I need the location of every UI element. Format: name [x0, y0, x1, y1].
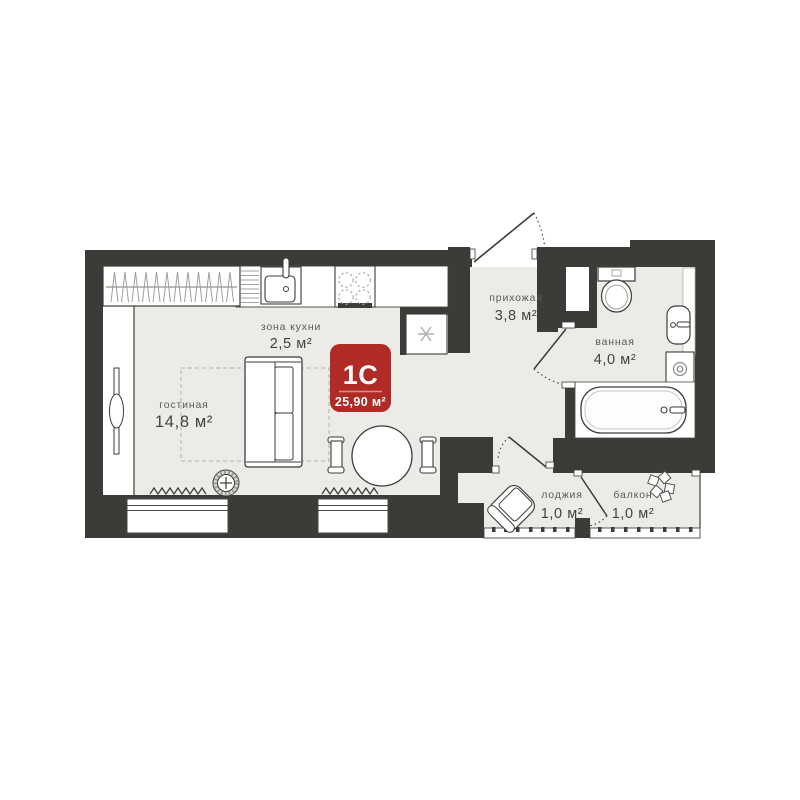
wall-loggia-left: [440, 437, 458, 538]
wall-hallway-right: [537, 247, 558, 332]
label-kitchen-zone: зона кухни: [261, 321, 321, 333]
sofa-icon: [245, 357, 302, 467]
badge-total-area: 25,90 м²: [335, 395, 386, 409]
wardrobe: [103, 266, 240, 306]
balcony-glazing: [590, 528, 700, 538]
wall-kitchen-right: [448, 247, 470, 353]
table-top: [352, 426, 412, 486]
area-kitchen-zone: 2,5 м²: [270, 336, 312, 352]
label-hallway: прихожая: [489, 292, 543, 304]
glazing: [484, 527, 700, 538]
wall-left: [85, 250, 103, 538]
window-right: [318, 499, 388, 533]
area-living-room: 14,8 м²: [155, 413, 213, 431]
toilet-icon: [598, 267, 635, 312]
wall-right: [695, 240, 715, 462]
apartment-badge: 1С 25,90 м²: [330, 344, 391, 412]
door-leaf: [474, 213, 534, 262]
bathtub-icon: [575, 382, 695, 438]
floor-plan-svg: зона кухни 2,5 м² гостиная 14,8 м² прихо…: [0, 0, 800, 800]
bathroom-sink-icon: [667, 306, 690, 344]
entrance-door: [470, 213, 546, 262]
wall-loggia-corner: [458, 503, 484, 538]
stove-burners-icon: [335, 266, 375, 308]
window-left: [127, 499, 228, 533]
label-loggia: лоджия: [541, 489, 583, 501]
area-loggia: 1,0 м²: [541, 506, 583, 522]
area-hallway: 3,8 м²: [495, 308, 537, 324]
wall-bath-door-side: [565, 387, 575, 440]
area-bathroom: 4,0 м²: [594, 352, 636, 368]
wall-fridge-niche-side: [400, 315, 406, 355]
fridge: [406, 314, 447, 354]
washing-machine-icon: [666, 352, 694, 385]
faucet: [283, 258, 289, 278]
floor-lamp-icon: [213, 470, 239, 496]
area-balcony: 1,0 м²: [612, 506, 654, 522]
vent-shaft-opening: [566, 267, 589, 311]
label-bathroom: ванная: [595, 336, 634, 348]
badge-type-label: 1С: [343, 360, 379, 390]
label-living-room: гостиная: [159, 399, 208, 411]
wall-top-main: [85, 250, 472, 267]
label-balcony: балкон: [613, 489, 652, 501]
floor-plan-page: зона кухни 2,5 м² гостиная 14,8 м² прихо…: [0, 0, 800, 800]
wall-bath-bottom: [553, 438, 715, 473]
mirror-lens: [110, 394, 124, 428]
